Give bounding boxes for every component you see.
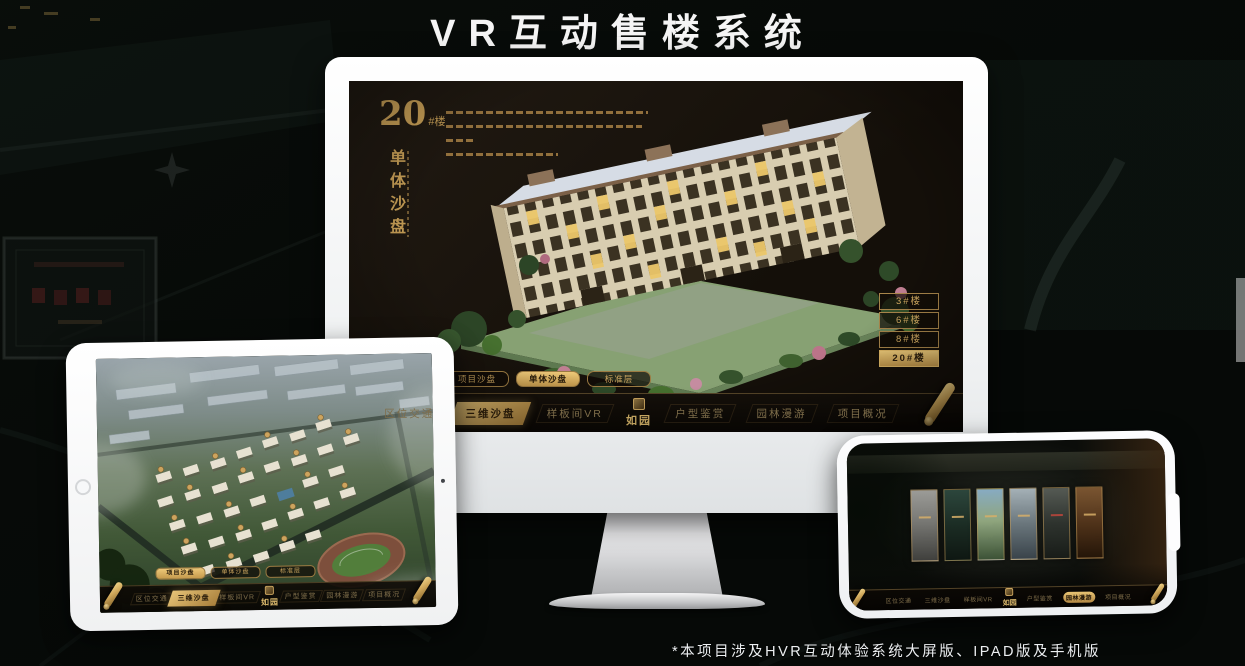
phone-nav-logo-ruyuan[interactable]: 如园 bbox=[1002, 588, 1016, 608]
phone-nav-item-garden-roam[interactable]: 园林漫游 bbox=[1063, 591, 1095, 603]
tablet-screen: 项目沙盘 单体沙盘 标准层 区位交通 三维沙盘 样板间VR 如园 户型鉴赏 园林… bbox=[96, 353, 436, 613]
tablet-nav-logo-ruyuan[interactable]: 如园 bbox=[261, 586, 279, 608]
gallery-panel-5[interactable] bbox=[1042, 487, 1070, 559]
phone-nav-item-unit-plans[interactable]: 户型鉴赏 bbox=[1024, 592, 1056, 604]
sandtable-subtabs: 项目沙盘 单体沙盘 标准层 bbox=[445, 371, 651, 387]
gallery-panel-1[interactable] bbox=[910, 489, 938, 561]
gallery-panel-3[interactable] bbox=[976, 488, 1004, 560]
monitor-stand-base bbox=[549, 593, 765, 609]
tablet-nav-item-location[interactable]: 区位交通 bbox=[132, 592, 172, 607]
gallery-panel-4[interactable] bbox=[1009, 487, 1037, 559]
tablet-nav-item-showroom-vr[interactable]: 样板间VR bbox=[215, 590, 259, 605]
tablet-camera-dot bbox=[441, 479, 445, 483]
phone-screen: 区位交通 三维沙盘 样板间VR 如园 户型鉴赏 园林漫游 项目概况 bbox=[847, 438, 1168, 611]
floor-button-8[interactable]: 8#楼 bbox=[879, 331, 939, 348]
building-number-suffix: #楼 bbox=[428, 116, 445, 128]
tablet-nav-item-3d-sandtable[interactable]: 三维沙盘 bbox=[173, 591, 213, 606]
tablet-subtab-project-sandtable[interactable]: 项目沙盘 bbox=[155, 567, 205, 580]
nav-item-unit-plans[interactable]: 户型鉴赏 bbox=[667, 403, 733, 424]
gallery-panel-2[interactable] bbox=[943, 489, 971, 561]
description-text-line bbox=[446, 111, 648, 114]
subtab-project-sandtable[interactable]: 项目沙盘 bbox=[445, 371, 509, 387]
floor-button-20[interactable]: 20#楼 bbox=[879, 350, 939, 367]
subtab-standard-floor[interactable]: 标准层 bbox=[587, 371, 651, 387]
subtab-single-building[interactable]: 单体沙盘 bbox=[516, 371, 580, 387]
tablet-navbar: 区位交通 三维沙盘 样板间VR 如园 户型鉴赏 园林漫游 项目概况 bbox=[100, 580, 436, 613]
ruyuan-seal-icon bbox=[633, 398, 645, 410]
description-text-line bbox=[446, 153, 558, 156]
tablet-nav-item-unit-plans[interactable]: 户型鉴赏 bbox=[280, 589, 320, 604]
project-subtitle: 单体沙盘 bbox=[383, 149, 407, 241]
description-text-line bbox=[446, 139, 476, 142]
phone-nav-item-location[interactable]: 区位交通 bbox=[882, 594, 914, 606]
nav-item-showroom-vr[interactable]: 样板间VR bbox=[539, 403, 611, 424]
phone-device: 区位交通 三维沙盘 样板间VR 如园 户型鉴赏 园林漫游 项目概况 bbox=[836, 430, 1177, 619]
floor-button-6[interactable]: 6#楼 bbox=[879, 312, 939, 329]
scene-gallery bbox=[910, 486, 1103, 561]
tablet-nav-item-garden-roam[interactable]: 园林漫游 bbox=[322, 588, 362, 603]
phone-nav-item-3d-sandtable[interactable]: 三维沙盘 bbox=[921, 593, 953, 605]
floor-button-3[interactable]: 3#楼 bbox=[879, 293, 939, 310]
page-title: VR互动售楼系统 bbox=[0, 2, 1245, 57]
tablet-device: 项目沙盘 单体沙盘 标准层 区位交通 三维沙盘 样板间VR 如园 户型鉴赏 园林… bbox=[66, 337, 459, 632]
page: VR互动售楼系统 bbox=[0, 0, 1245, 666]
phone-navbar: 区位交通 三维沙盘 样板间VR 如园 户型鉴赏 园林漫游 项目概况 bbox=[849, 584, 1167, 611]
tablet-home-button[interactable] bbox=[75, 479, 91, 495]
tablet-subtab-standard-floor[interactable]: 标准层 bbox=[265, 565, 315, 578]
phone-nav-item-showroom-vr[interactable]: 样板间VR bbox=[961, 593, 996, 605]
nav-logo-ruyuan[interactable]: 如园 bbox=[626, 398, 652, 428]
ruyuan-seal-icon bbox=[1005, 588, 1013, 596]
phone-nav-item-project-overview[interactable]: 项目概况 bbox=[1102, 590, 1134, 602]
tablet-subtab-single-building[interactable]: 单体沙盘 bbox=[210, 566, 260, 579]
subtitle-ornament bbox=[407, 151, 409, 237]
nav-item-3d-sandtable[interactable]: 三维沙盘 bbox=[457, 403, 523, 424]
phone-notch bbox=[1167, 492, 1180, 550]
monitor-stand-neck bbox=[591, 508, 723, 598]
nav-item-garden-roam[interactable]: 园林漫游 bbox=[749, 403, 815, 424]
description-text-line bbox=[446, 125, 642, 128]
project-header: 20#楼 bbox=[379, 97, 445, 131]
nav-item-project-overview[interactable]: 项目概况 bbox=[830, 403, 896, 424]
tablet-nav-item-project-overview[interactable]: 项目概况 bbox=[364, 588, 404, 603]
building-number: 20 bbox=[379, 94, 426, 134]
ruyuan-seal-icon bbox=[265, 586, 274, 595]
gallery-panel-6[interactable] bbox=[1075, 486, 1103, 558]
footnote-text: *本项目涉及HVR互动体验系统大屏版、IPAD版及手机版 bbox=[672, 640, 1101, 661]
